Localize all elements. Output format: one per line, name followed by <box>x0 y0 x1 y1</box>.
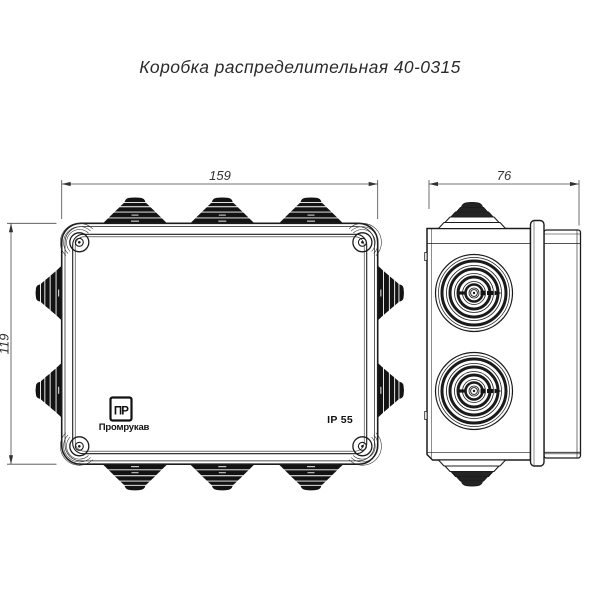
cable-gland <box>102 197 168 224</box>
cable-gland <box>189 464 255 491</box>
cable-glands-left <box>36 265 63 418</box>
side-lid <box>531 221 581 467</box>
cable-gland <box>278 464 344 491</box>
front-view: 159 119 <box>0 168 404 490</box>
cable-gland-outline <box>439 203 506 229</box>
cable-gland <box>278 197 344 224</box>
cable-glands-top <box>102 197 344 224</box>
cable-gland <box>102 464 168 491</box>
side-view: 76 <box>425 168 581 486</box>
cable-gland <box>189 197 255 224</box>
technical-drawing-page: Коробка распределительная 40-0315 159 11… <box>0 0 600 600</box>
side-body <box>425 229 531 461</box>
ip-rating: IP 55 <box>327 414 353 426</box>
dimension-height: 119 <box>0 223 57 464</box>
dim-depth-label: 76 <box>497 168 512 183</box>
cable-glands-bottom <box>102 464 344 491</box>
rib-notch <box>425 412 427 420</box>
lid-flange <box>531 221 545 467</box>
drawing-title: Коробка распределительная 40-0315 <box>139 57 461 77</box>
cable-glands-right <box>377 265 404 418</box>
rib-notch <box>425 253 427 261</box>
cable-gland <box>377 265 404 321</box>
cable-gland <box>36 265 63 321</box>
dim-width-label: 159 <box>209 168 231 183</box>
brand-name: Промрукав <box>99 422 150 433</box>
cable-gland <box>36 362 63 418</box>
drawing-canvas: Коробка распределительная 40-0315 159 11… <box>0 0 600 600</box>
cable-gland <box>377 362 404 418</box>
cable-gland-outline <box>439 460 506 486</box>
dim-height-label: 119 <box>0 334 12 355</box>
brand-logo-glyph: ПР <box>114 406 129 418</box>
